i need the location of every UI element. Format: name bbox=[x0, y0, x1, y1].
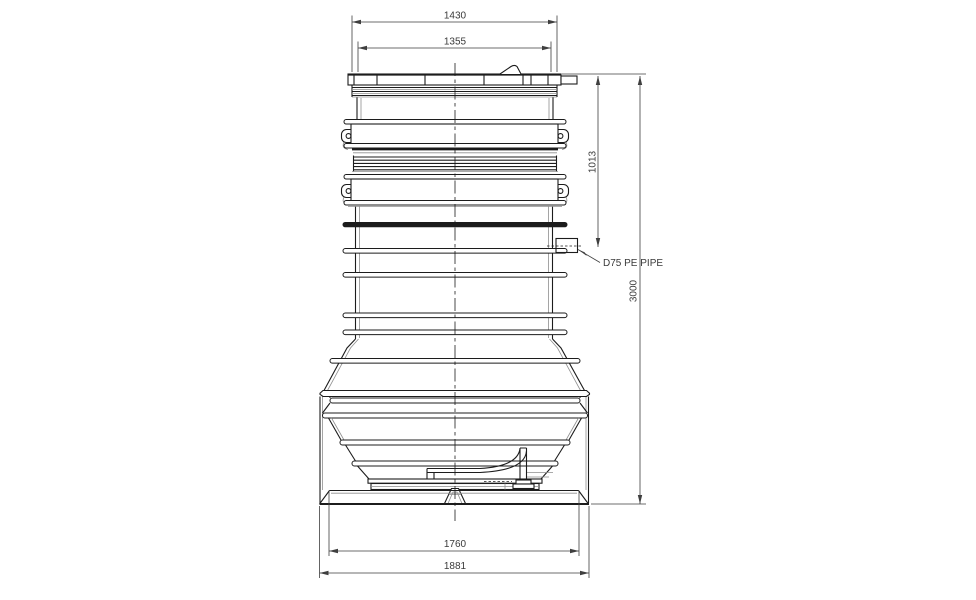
neck-flange-stack bbox=[352, 85, 557, 97]
dim-label: 3000 bbox=[629, 279, 640, 302]
dim-inlet-depth: 1013 bbox=[588, 76, 601, 247]
tank-lid bbox=[348, 65, 577, 85]
dim-label: 1760 bbox=[444, 539, 467, 550]
dim-label: 1355 bbox=[444, 37, 467, 48]
dim-label: 1430 bbox=[444, 11, 467, 22]
pipe-callout: D75 PE PIPE bbox=[578, 250, 663, 270]
pipe-callout-label: D75 PE PIPE bbox=[603, 258, 663, 269]
cone-transition bbox=[324, 339, 585, 391]
lid-handle bbox=[500, 65, 521, 74]
tank-elevation-drawing: 1430 1355 1013 3000 D75 PE PIPE 1760 bbox=[0, 0, 976, 600]
dim-label: 1881 bbox=[444, 561, 467, 572]
technical-drawing-page: 1430 1355 1013 3000 D75 PE PIPE 1760 bbox=[0, 0, 976, 600]
dim-top-inner-width: 1355 bbox=[358, 37, 551, 73]
lid-latch bbox=[561, 76, 577, 84]
dim-label: 1013 bbox=[588, 150, 599, 173]
dim-overall-height: 3000 bbox=[591, 76, 646, 504]
